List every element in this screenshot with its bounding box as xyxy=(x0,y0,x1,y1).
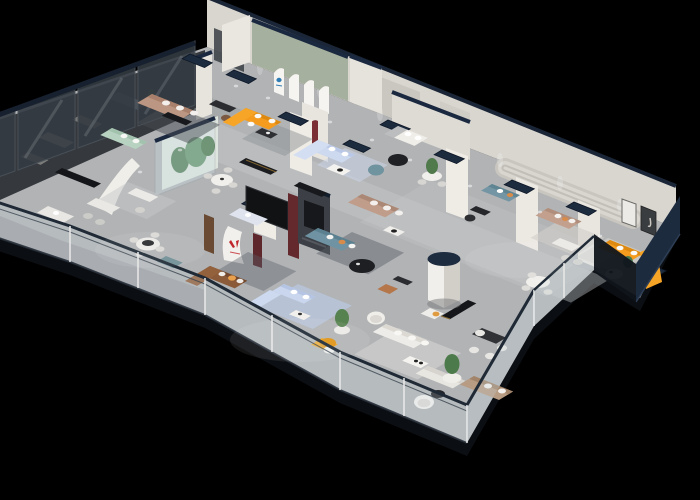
downlight-dot-6 xyxy=(468,185,472,188)
dining-top-right-plant xyxy=(426,158,438,174)
floor-glow-1 xyxy=(230,318,370,362)
downlight-dot-8 xyxy=(598,235,602,238)
plant-foliage-center xyxy=(445,354,460,374)
tan-pillow-2 xyxy=(498,389,506,394)
wall-downlight-6 xyxy=(557,176,563,190)
viewport xyxy=(0,0,700,500)
coffee-table-lightblue-tray xyxy=(337,168,343,171)
teal-right-pillow-1 xyxy=(497,189,503,193)
sofa-brown-pillow-1 xyxy=(219,272,226,276)
round-chair-teal xyxy=(368,165,384,176)
coffee-table-black-decor xyxy=(356,263,360,265)
arch-room-return-wall xyxy=(222,15,250,72)
taupe-tl-pillow-3 xyxy=(190,111,198,116)
taupe-tl-pillow-1 xyxy=(162,101,170,106)
dining-top-right-chair-1 xyxy=(418,179,427,185)
orange-top-pillow-2 xyxy=(269,119,276,124)
downlight-dot-3 xyxy=(328,121,332,124)
armchair-by-cylinder-pillow xyxy=(433,312,440,317)
orange-right-pillow-2 xyxy=(631,251,638,256)
arch-niche-2 xyxy=(289,74,299,102)
cylinder-floor-shadow xyxy=(427,299,461,310)
taupe-right-pillow-orange xyxy=(562,217,568,221)
dining-topleft-chair-3 xyxy=(212,188,221,194)
downlight-dot-9 xyxy=(178,149,182,152)
desk-set-1-chair-a xyxy=(95,219,105,225)
orange-top-pillow-1 xyxy=(255,114,262,119)
plant-table-center xyxy=(443,373,462,383)
armchair-white-round-seat xyxy=(370,315,382,323)
coffee-table-front-decor xyxy=(298,313,302,315)
coffee-table-white-tray xyxy=(391,229,397,232)
coffee-table-black-round xyxy=(349,259,375,273)
taupe-tl-pillow-2 xyxy=(176,106,184,111)
taupe-c-pillow-1 xyxy=(370,201,378,206)
white-lounge-pillow-1 xyxy=(394,331,402,336)
sofa-mint-pillow-2 xyxy=(133,139,140,143)
dining-front-chair-1 xyxy=(469,347,479,353)
arch-blue-logo-icon xyxy=(276,78,281,82)
desk-set-2-chair xyxy=(135,207,145,213)
lightblue-pillow-2 xyxy=(342,152,349,156)
downlight-dot-7 xyxy=(538,211,542,214)
maroon-panel-tall xyxy=(288,193,299,259)
art-frame-white xyxy=(622,199,636,227)
chair-dark-right xyxy=(465,215,476,222)
sofa-brown-cushion-orange xyxy=(228,275,236,280)
sofa-white-left-low-pillow xyxy=(53,211,59,215)
cylinder-top-navy xyxy=(428,252,461,266)
taupe-c-pillow-2 xyxy=(383,206,391,211)
downlight-dot-2 xyxy=(266,97,270,100)
teal-right-pillow-2 xyxy=(507,193,513,197)
dining-topleft-chair-1 xyxy=(204,173,213,179)
orange-top-pillow-3 xyxy=(248,122,255,127)
downlight-dot-1 xyxy=(234,85,238,88)
wood-accent-panel xyxy=(204,214,214,254)
desk-set-1-chair-b xyxy=(83,213,93,219)
floor-glow-2 xyxy=(95,232,205,268)
coffee-table-arch-decor xyxy=(266,132,270,134)
taupe-right-pillow-1 xyxy=(555,214,562,218)
dining-front-chair-4 xyxy=(475,330,485,336)
sofa-white-bottomleft-pillow xyxy=(245,213,251,217)
sofa-brown-pillow-2 xyxy=(237,279,244,283)
white-lounge-pillow-2 xyxy=(408,336,416,341)
taupe-c-pillow-3 xyxy=(395,211,403,216)
downlight-dot-4 xyxy=(370,139,374,142)
dining-top-right-chair-2 xyxy=(438,181,447,187)
dining-topleft-decor xyxy=(220,178,224,180)
orange-right-pillow-1 xyxy=(617,246,624,251)
white-lounge-pillow-3 xyxy=(421,341,429,346)
dining-white-right-chair-1 xyxy=(522,285,531,291)
bed-white-pillow-2 xyxy=(415,136,422,140)
downlight-dot-5 xyxy=(408,159,412,162)
teal-pillow-1 xyxy=(327,235,334,240)
bed-white-pillow-1 xyxy=(405,132,412,136)
lightblue-pillow-1 xyxy=(329,147,336,151)
lightblue-front-pillow-1 xyxy=(291,290,298,294)
teal-pillow-2 xyxy=(349,244,356,249)
showroom-floorplan-render xyxy=(0,0,700,500)
lounge-table-vase-1 xyxy=(414,360,418,363)
round-table-black xyxy=(388,154,408,166)
floor-glow-3 xyxy=(465,242,575,278)
lounge-table-vase-2 xyxy=(419,362,423,365)
lightblue-front-pillow-2 xyxy=(303,295,310,299)
downlight-dot-10 xyxy=(138,171,142,174)
teal-pillow-orange xyxy=(339,240,346,245)
sofa-mint-pillow-1 xyxy=(121,134,128,138)
dining-topleft-chair-2 xyxy=(229,182,238,188)
dining-topleft-chair-4 xyxy=(224,167,233,173)
wall-downlight-5 xyxy=(497,153,503,167)
taupe-right-pillow-2 xyxy=(569,219,576,223)
